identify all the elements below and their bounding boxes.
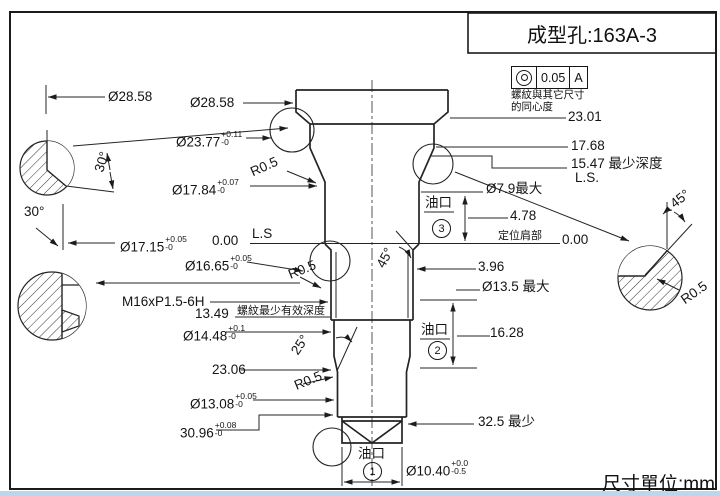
dim-dia-23-77: Ø23.77+0.11-0 (176, 131, 242, 150)
oil-port-1-label: 油口 (358, 447, 385, 461)
title-block: 成型孔:163A-3 (468, 13, 716, 53)
thread-depth-note: 螺紋最少有效深度 (237, 305, 325, 317)
dim-dia-10-40: Ø10.40+0.0-0.5 (406, 460, 468, 479)
dim-13-49: 13.49 (195, 307, 229, 321)
dim-dia-17-84: Ø17.84+0.07-0 (172, 179, 239, 198)
dim-dia-14-48: Ø14.48+0.1-0 (183, 325, 245, 344)
dim-15-47-min-depth: 15.47 最少深度 (571, 157, 663, 171)
concentricity-icon (516, 70, 532, 86)
dim-dia-7-9-max: Ø7.9最大 (486, 182, 542, 196)
dim-30-96: 30.96+0.08-0 (180, 422, 236, 441)
locating-shoulder-label: 定位肩部 (498, 230, 542, 242)
dim-32-5-min: 32.5 最少 (478, 415, 535, 429)
concentricity-symbol-cell (512, 67, 537, 88)
datum-zero-right: 0.00 (562, 233, 588, 247)
dim-dia-28-58: Ø28.58 (190, 96, 234, 110)
tolerance-datum-cell: A (570, 67, 586, 88)
oil-port-2-label: 油口 (421, 323, 448, 337)
bottom-strip (0, 491, 720, 496)
tolerance-frame: 0.05 A (511, 66, 588, 89)
datum-zero-left: 0.00 (212, 234, 238, 248)
dim-3-96: 3.96 (478, 260, 504, 274)
dim-17-68: 17.68 (571, 139, 605, 153)
dim-23-06: 23.06 (212, 363, 246, 377)
detail-view-thread (18, 270, 88, 342)
tolerance-note: 螺紋與其它尺寸 的同心度 (511, 90, 585, 113)
oil-port-3-number: 3 (432, 219, 451, 238)
datum-ls-right: L.S. (575, 171, 599, 185)
dim-angle-30-left: 30° (24, 205, 44, 219)
oil-port-1-number: 1 (363, 462, 382, 481)
detail-marker-circles (270, 108, 453, 466)
oil-port-3-label: 油口 (425, 196, 452, 210)
dim-dia-16-65: Ø16.65+0.05-0 (185, 255, 252, 274)
dim-thread-spec: M16xP1.5-6H (122, 295, 205, 309)
oil-port-2-number: 2 (428, 341, 447, 360)
dim-dia-13-08: Ø13.08+0.05-0 (190, 393, 257, 412)
drawing-title: 成型孔:163A-3 (527, 19, 657, 48)
drawing-canvas (0, 0, 720, 496)
dim-dia-28-58-left: Ø28.58 (108, 90, 152, 104)
detail-connectors (73, 128, 629, 283)
dim-16-28: 16.28 (490, 326, 524, 340)
dim-dia-17-15: Ø17.15+0.05-0 (120, 236, 187, 255)
engineering-drawing: Ø28.58 Ø28.58 Ø23.77+0.11-0 R0.5 Ø17.84+… (0, 0, 720, 496)
tolerance-value-cell: 0.05 (537, 67, 570, 88)
datum-ls-left: L.S (252, 227, 272, 241)
dim-dia-13-5-max: Ø13.5 最大 (482, 280, 550, 294)
dim-4-78: 4.78 (510, 209, 536, 223)
